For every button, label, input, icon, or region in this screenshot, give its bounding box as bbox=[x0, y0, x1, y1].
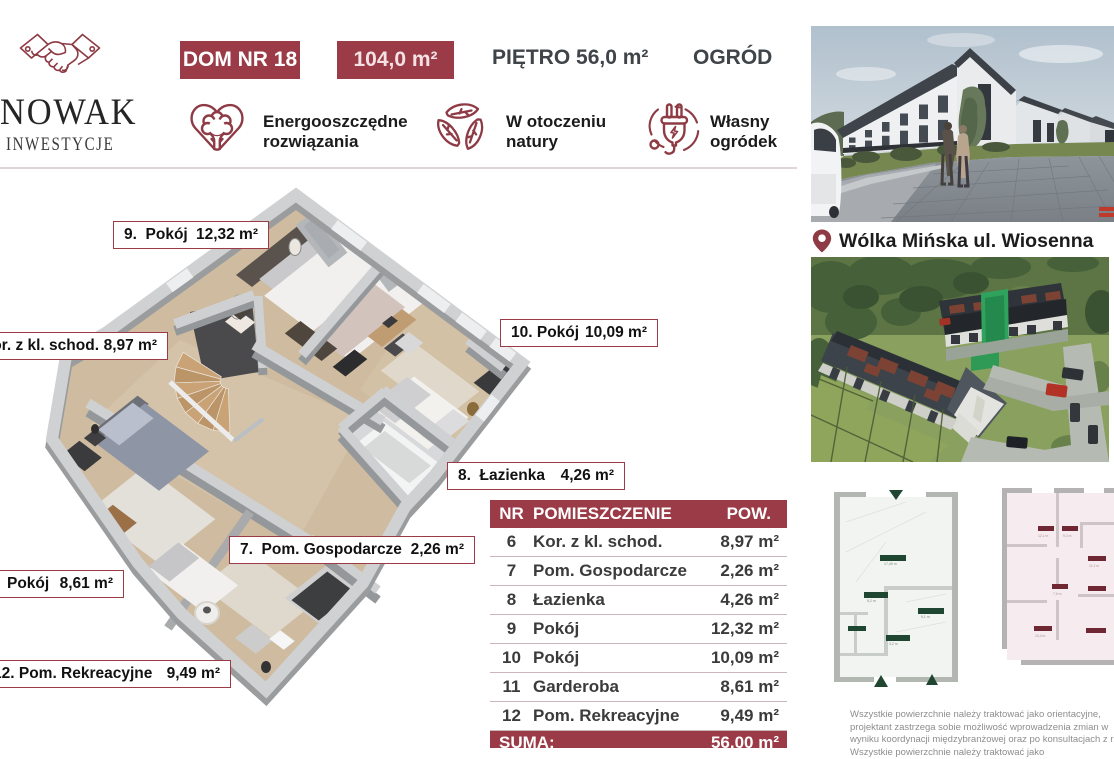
svg-text:9,1 m: 9,1 m bbox=[921, 615, 930, 619]
svg-text:7,6 m: 7,6 m bbox=[1053, 592, 1062, 596]
svg-text:17,49 m: 17,49 m bbox=[884, 562, 897, 566]
svg-text:5,2 m: 5,2 m bbox=[867, 599, 876, 603]
svg-text:12,1 m: 12,1 m bbox=[1038, 534, 1049, 538]
svg-text:11,2 m: 11,2 m bbox=[1089, 564, 1099, 568]
svg-text:9,3 m: 9,3 m bbox=[1063, 534, 1072, 538]
svg-text:10,4 m: 10,4 m bbox=[1035, 634, 1046, 638]
svg-text:3,2 m: 3,2 m bbox=[889, 642, 898, 646]
